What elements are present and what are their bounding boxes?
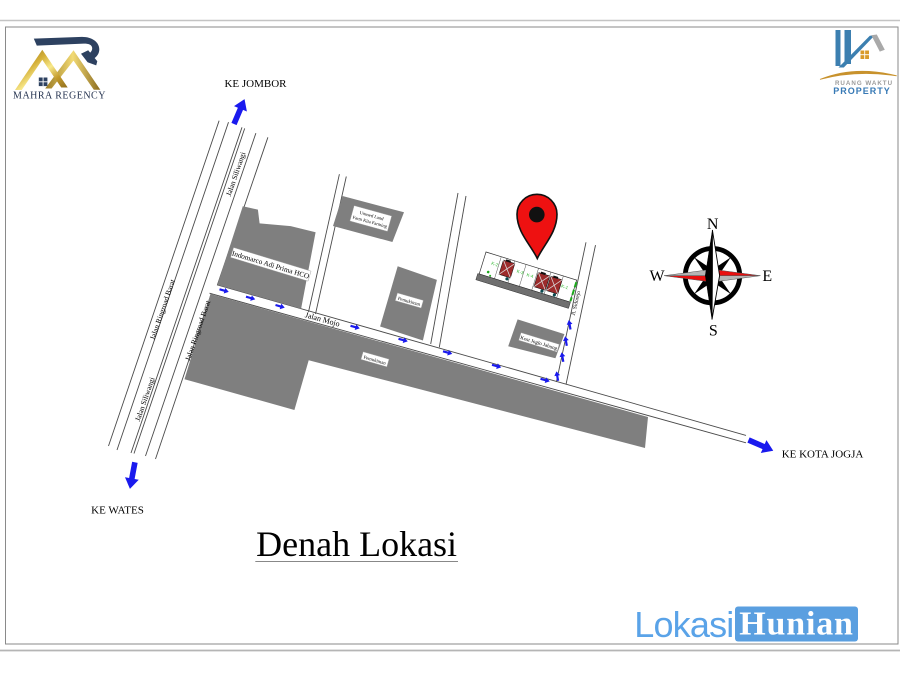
svg-text:W: W xyxy=(649,268,665,285)
svg-text:KE KOTA JOGJA: KE KOTA JOGJA xyxy=(782,449,864,461)
svg-text:PROPERTY: PROPERTY xyxy=(833,86,891,96)
svg-text:MAHRA REGENCY: MAHRA REGENCY xyxy=(13,91,106,102)
svg-text:Denah Lokasi: Denah Lokasi xyxy=(256,524,457,564)
svg-text:KE WATES: KE WATES xyxy=(91,505,144,517)
svg-text:Hunian: Hunian xyxy=(739,606,853,643)
svg-text:Lokasi: Lokasi xyxy=(634,604,733,645)
svg-text:E: E xyxy=(762,268,772,285)
svg-text:KE JOMBOR: KE JOMBOR xyxy=(224,78,287,90)
svg-text:S: S xyxy=(709,323,718,340)
svg-text:N: N xyxy=(707,216,719,233)
